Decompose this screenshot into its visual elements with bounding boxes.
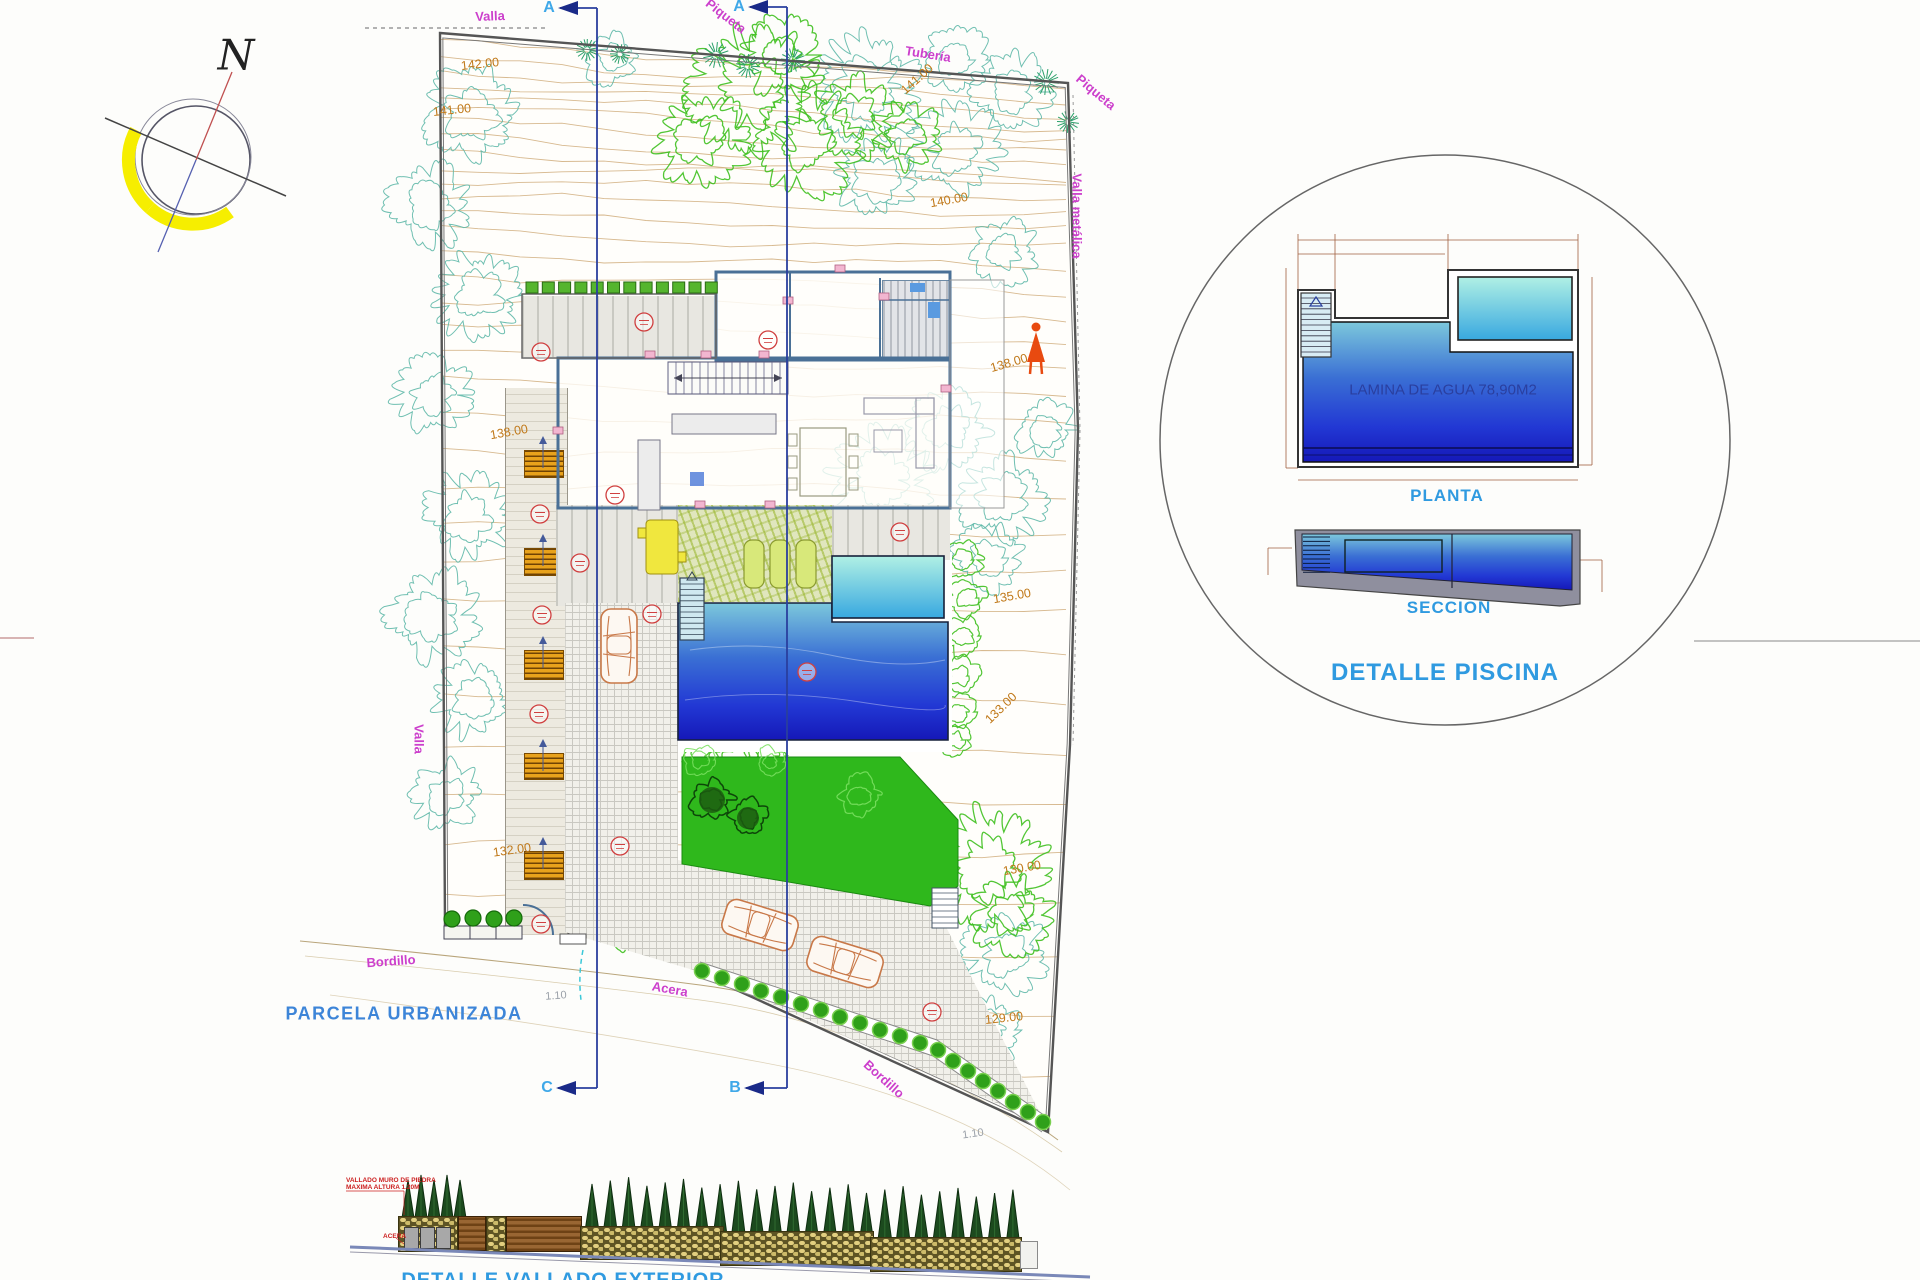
section-marker-letter: A (543, 0, 555, 17)
boundary-label: Valla (412, 724, 427, 754)
fence-sidewalk-label: ACERA (383, 1233, 406, 1240)
pool-detail-title: DETALLE PISCINA (1331, 659, 1559, 687)
pool-plan-caption: PLANTA (1410, 486, 1484, 506)
pool-section-caption: SECCION (1407, 598, 1491, 618)
fence-note: VALLADO MURO DE PIEDRA MAXIMA ALTURA 1.2… (346, 1177, 436, 1191)
section-marker-letter: B (729, 1079, 741, 1097)
fence-note-line2: MAXIMA ALTURA 1.20M (346, 1184, 436, 1191)
pool-water-area-label: LAMINA DE AGUA 78,90M2 (1349, 382, 1537, 399)
person-figure (1027, 323, 1045, 375)
dimension-label: 1.10 (545, 989, 567, 1002)
section-marker-letter: C (541, 1079, 553, 1097)
section-marker-letter: A (733, 0, 745, 16)
fence-note-line1: VALLADO MURO DE PIEDRA (346, 1177, 436, 1184)
compass-north-label: N (218, 31, 255, 80)
site-plan-sheet: N PARCELA URBANIZADA LAMINA DE AGUA 78,9… (0, 0, 1920, 1280)
parcel-label: PARCELA URBANIZADA (286, 1004, 523, 1025)
boundary-label: Valla metálica (1070, 173, 1085, 258)
boundary-label: Valla (475, 8, 505, 24)
fence-detail-title: DETALLE VALLADO EXTERIOR (401, 1270, 724, 1280)
